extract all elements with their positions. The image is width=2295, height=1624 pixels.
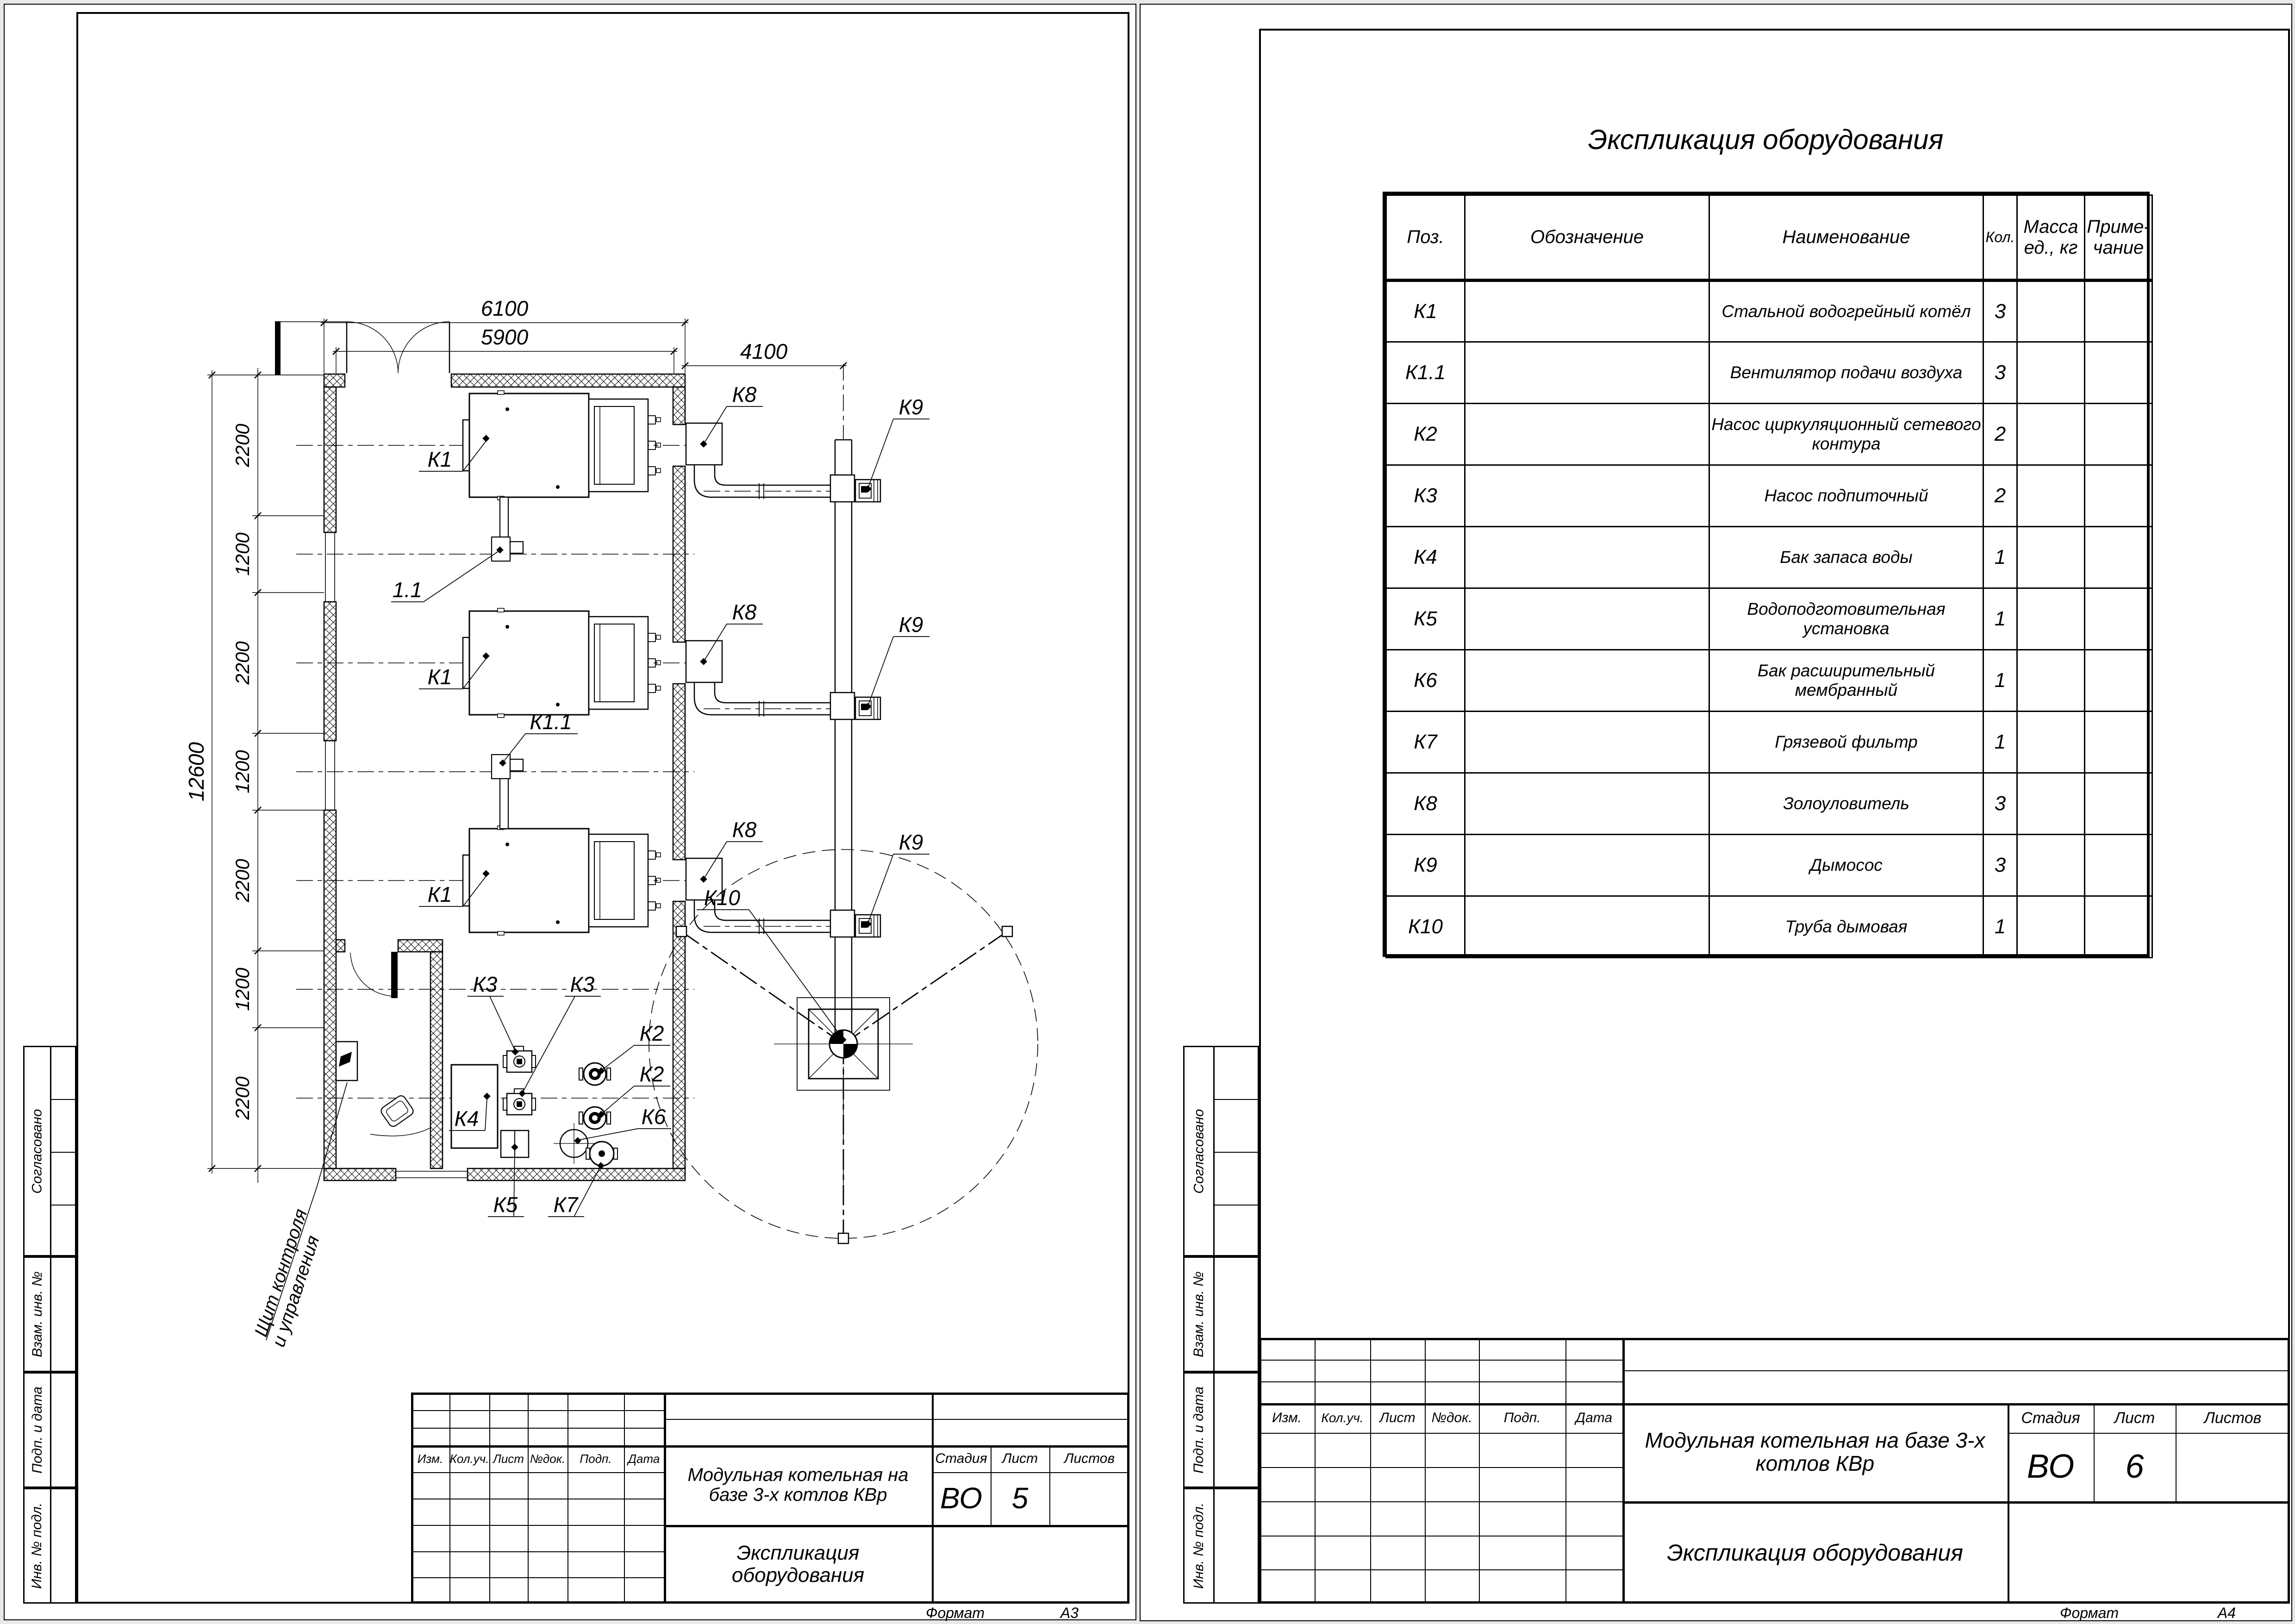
table-cell-col2: Насос подпиточный — [1709, 465, 1983, 527]
table-cell-col3: 3 — [1983, 773, 2017, 835]
table-cell-col0: К1 — [1386, 281, 1465, 342]
table-cell-col3: 3 — [1983, 342, 2017, 404]
stamp-sign-date-a4: Подп. и дата — [1183, 1372, 1259, 1488]
table-cell-col5 — [2085, 650, 2152, 712]
format-value: А4 — [2218, 1605, 2236, 1621]
table-cell-col1 — [1465, 835, 1709, 896]
rev-col-list: Лист — [489, 1445, 528, 1472]
table-cell-col3: 1 — [1983, 712, 2017, 773]
table-cell-col1 — [1465, 527, 1709, 588]
table-cell-col1 — [1465, 342, 1709, 404]
table-cell-col0: К6 — [1386, 650, 1465, 712]
stamp-inventory: Инв. № подл. — [23, 1488, 76, 1604]
table-cell-col4 — [2017, 527, 2085, 588]
table-cell-col2: Вентилятор подачи воздуха — [1709, 342, 1983, 404]
rev-col-izm: Изм. — [1259, 1403, 1315, 1433]
table-cell-col2: Бак расширительный мембранный — [1709, 650, 1983, 712]
table-cell-col0: К4 — [1386, 527, 1465, 588]
stamp-approved-label: Согласовано — [1191, 1109, 1207, 1193]
table-row: К5Водоподготовительная установка1 — [1386, 588, 2152, 650]
equipment-table: Поз. Обозначение Наименование Кол. Масса… — [1383, 192, 2150, 957]
table-cell-col3: 1 — [1983, 650, 2017, 712]
table-cell-col5 — [2085, 835, 2152, 896]
table-cell-col5 — [2085, 342, 2152, 404]
table-row: К7Грязевой фильтр1 — [1386, 712, 2152, 773]
table-row: К10Труба дымовая1 — [1386, 896, 2152, 958]
table-cell-col1 — [1465, 281, 1709, 342]
stamp-replaced-label: Взам. инв. № — [1191, 1271, 1207, 1357]
rev-col-list: Лист — [1370, 1403, 1425, 1433]
stage-label-a3: Стадия — [932, 1445, 991, 1472]
rev-col-podp: Подп. — [568, 1445, 624, 1472]
table-cell-col4 — [2017, 465, 2085, 527]
col-note: Приме- чание — [2085, 195, 2152, 281]
table-cell-col1 — [1465, 465, 1709, 527]
table-row: К1Стальной водогрейный котёл3 — [1386, 281, 2152, 342]
table-cell-col3: 1 — [1983, 527, 2017, 588]
table-cell-col4 — [2017, 773, 2085, 835]
table-row: К2Насос циркуляционный сетевого контура2 — [1386, 404, 2152, 465]
sheet-label-a3: Лист — [991, 1445, 1049, 1472]
doc-title-a3: Экспликация оборудования — [668, 1525, 928, 1604]
stamp-replaced-a4: Взам. инв. № — [1183, 1256, 1259, 1372]
sheet-label-a4: Лист — [2094, 1403, 2176, 1433]
table-cell-col4 — [2017, 588, 2085, 650]
table-cell-col1 — [1465, 588, 1709, 650]
table-cell-col1 — [1465, 896, 1709, 958]
stamp-approved-label: Согласовано — [30, 1109, 45, 1193]
table-cell-col2: Дымосос — [1709, 835, 1983, 896]
project-title-a3: Модульная котельная на базе 3-х котлов К… — [668, 1448, 928, 1523]
table-row: К8Золоуловитель3 — [1386, 773, 2152, 835]
table-cell-col5 — [2085, 465, 2152, 527]
sheet-number-a3: 5 — [991, 1472, 1049, 1525]
table-cell-col4 — [2017, 712, 2085, 773]
table-cell-col2: Золоуловитель — [1709, 773, 1983, 835]
table-cell-col5 — [2085, 404, 2152, 465]
format-value: А3 — [1060, 1605, 1079, 1621]
table-cell-col5 — [2085, 773, 2152, 835]
table-cell-col3: 1 — [1983, 896, 2017, 958]
table-cell-col5 — [2085, 527, 2152, 588]
sheets-total-a4 — [2176, 1433, 2290, 1501]
table-cell-col5 — [2085, 281, 2152, 342]
sheets-label-a3: Листов — [1049, 1445, 1129, 1472]
stage-value-a4: ВО — [2008, 1433, 2094, 1501]
stamp-inventory-label: Инв. № подл. — [30, 1503, 45, 1589]
table-cell-col2: Водоподготовительная установка — [1709, 588, 1983, 650]
col-qty: Кол. — [1983, 195, 2017, 281]
table-cell-col5 — [2085, 896, 2152, 958]
table-cell-col2: Труба дымовая — [1709, 896, 1983, 958]
format-label-a3: Формат А3 — [926, 1605, 1079, 1621]
table-cell-col0: К3 — [1386, 465, 1465, 527]
stamp-sign-date: Подп. и дата — [23, 1372, 76, 1488]
rev-col-dok: №док. — [528, 1445, 568, 1472]
table-cell-col0: К2 — [1386, 404, 1465, 465]
table-row: К3Насос подпиточный2 — [1386, 465, 2152, 527]
format-word: Формат — [2060, 1605, 2119, 1621]
col-pos: Поз. — [1386, 195, 1465, 281]
col-name: Наименование — [1709, 195, 1983, 281]
sheet-a3-frame — [76, 12, 1129, 1604]
rev-col-izm: Изм. — [411, 1445, 449, 1472]
table-cell-col0: К10 — [1386, 896, 1465, 958]
table-cell-col1 — [1465, 712, 1709, 773]
stamp-approved-group-a4: Согласовано — [1183, 1046, 1259, 1256]
table-header-row: Поз. Обозначение Наименование Кол. Масса… — [1386, 195, 2152, 281]
table-cell-col1 — [1465, 404, 1709, 465]
table-cell-col4 — [2017, 281, 2085, 342]
table-cell-col5 — [2085, 712, 2152, 773]
table-cell-col4 — [2017, 342, 2085, 404]
table-cell-col0: К8 — [1386, 773, 1465, 835]
rev-col-data: Дата — [1565, 1403, 1622, 1433]
col-mass: Масса ед., кг — [2017, 195, 2085, 281]
rev-col-dok: №док. — [1425, 1403, 1479, 1433]
doc-title-a4: Экспликация оборудования — [1629, 1504, 2001, 1601]
rev-col-koluch: Кол.уч. — [1315, 1403, 1370, 1433]
table-cell-col0: К5 — [1386, 588, 1465, 650]
stamp-inventory-a4: Инв. № подл. — [1183, 1488, 1259, 1604]
rev-col-podp: Подп. — [1479, 1403, 1565, 1433]
table-row: К6Бак расширительный мембранный1 — [1386, 650, 2152, 712]
project-title-a4: Модульная котельная на базе 3-х котлов К… — [1629, 1408, 2001, 1497]
rev-col-data: Дата — [624, 1445, 664, 1472]
stamp-sign-date-label: Подп. и дата — [30, 1387, 45, 1474]
table-cell-col3: 3 — [1983, 281, 2017, 342]
table-cell-col4 — [2017, 404, 2085, 465]
table-cell-col2: Бак запаса воды — [1709, 527, 1983, 588]
stamp-replaced: Взам. инв. № — [23, 1256, 76, 1372]
stage-label-a4: Стадия — [2008, 1403, 2094, 1433]
stamp-replaced-label: Взам. инв. № — [30, 1271, 45, 1357]
table-cell-col3: 3 — [1983, 835, 2017, 896]
table-cell-col1 — [1465, 773, 1709, 835]
table-cell-col3: 2 — [1983, 465, 2017, 527]
table-cell-col1 — [1465, 650, 1709, 712]
rev-col-koluch: Кол.уч. — [449, 1445, 489, 1472]
table-cell-col2: Грязевой фильтр — [1709, 712, 1983, 773]
table-cell-col2: Стальной водогрейный котёл — [1709, 281, 1983, 342]
table-cell-col4 — [2017, 650, 2085, 712]
stage-value-a3: ВО — [932, 1472, 991, 1525]
table-cell-col2: Насос циркуляционный сетевого контура — [1709, 404, 1983, 465]
stamp-inventory-label: Инв. № подл. — [1191, 1503, 1207, 1589]
sheets-total-a3 — [1049, 1472, 1129, 1525]
table-cell-col5 — [2085, 588, 2152, 650]
table-cell-col0: К9 — [1386, 835, 1465, 896]
table-cell-col0: К7 — [1386, 712, 1465, 773]
table-row: К1.1Вентилятор подачи воздуха3 — [1386, 342, 2152, 404]
table-cell-col4 — [2017, 896, 2085, 958]
equipment-table-heading: Экспликация оборудования — [1383, 121, 2149, 158]
stamp-approved-group: Согласовано — [23, 1046, 76, 1256]
col-designation: Обозначение — [1465, 195, 1709, 281]
table-row: К4Бак запаса воды1 — [1386, 527, 2152, 588]
stamp-sign-date-label: Подп. и дата — [1191, 1387, 1207, 1474]
sheets-label-a4: Листов — [2176, 1403, 2290, 1433]
table-row: К9Дымосос3 — [1386, 835, 2152, 896]
table-cell-col3: 2 — [1983, 404, 2017, 465]
table-cell-col3: 1 — [1983, 588, 2017, 650]
table-cell-col0: К1.1 — [1386, 342, 1465, 404]
format-word: Формат — [926, 1605, 985, 1621]
sheet-number-a4: 6 — [2094, 1433, 2176, 1501]
table-cell-col4 — [2017, 835, 2085, 896]
format-label-a4: Формат А4 — [2060, 1605, 2236, 1621]
